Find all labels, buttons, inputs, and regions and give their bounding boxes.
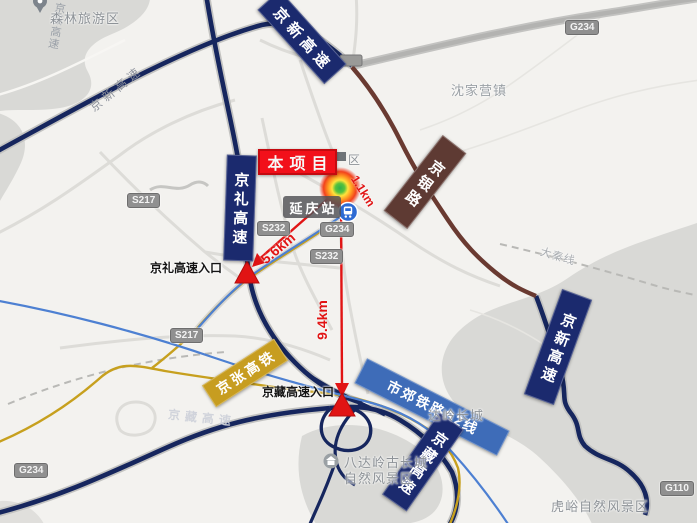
badge-g234-ne: G234 — [565, 20, 599, 35]
badge-s217-nw: S217 — [127, 193, 160, 208]
banner-jingli: 京礼高速 — [223, 155, 257, 262]
badge-g234-center: G234 — [320, 222, 354, 237]
badge-g110-se: G110 — [660, 481, 694, 496]
distance-to-jingzang: 9.4km — [314, 300, 330, 340]
place-forest: 森林旅游区 — [50, 8, 120, 27]
station-label: 延庆站 — [283, 196, 341, 218]
place-badaling-wall: 达岭长城 — [428, 405, 484, 424]
label-jingzang-entrance: 京藏高速入口 — [262, 383, 334, 400]
terrain-blobs — [0, 0, 697, 523]
scenic-poi-icon — [324, 454, 339, 469]
station-icon — [339, 203, 358, 222]
place-badaling-scenic-2: 自然风景区 — [344, 468, 414, 487]
map-canvas[interactable]: 京新高速 京新高速 京藏高速 京新高速 京礼高速 京银路 京新高速 京张高铁 市… — [0, 0, 697, 523]
place-district-fragment: 区 — [348, 151, 361, 168]
badge-s217-s: S217 — [170, 328, 203, 343]
place-huyu: 虎峪自然风景区 — [551, 496, 649, 515]
project-title-box: 本项目 — [258, 149, 337, 175]
badge-s232-s: S232 — [310, 249, 343, 264]
badge-g234-sw: G234 — [14, 463, 48, 478]
map-roads-layer — [0, 0, 697, 523]
tiny-poi-icon — [337, 152, 346, 161]
river — [150, 182, 208, 190]
label-jingli-entrance: 京礼高速入口 — [150, 259, 222, 276]
place-shenjiaying: 沈家营镇 — [451, 80, 507, 99]
